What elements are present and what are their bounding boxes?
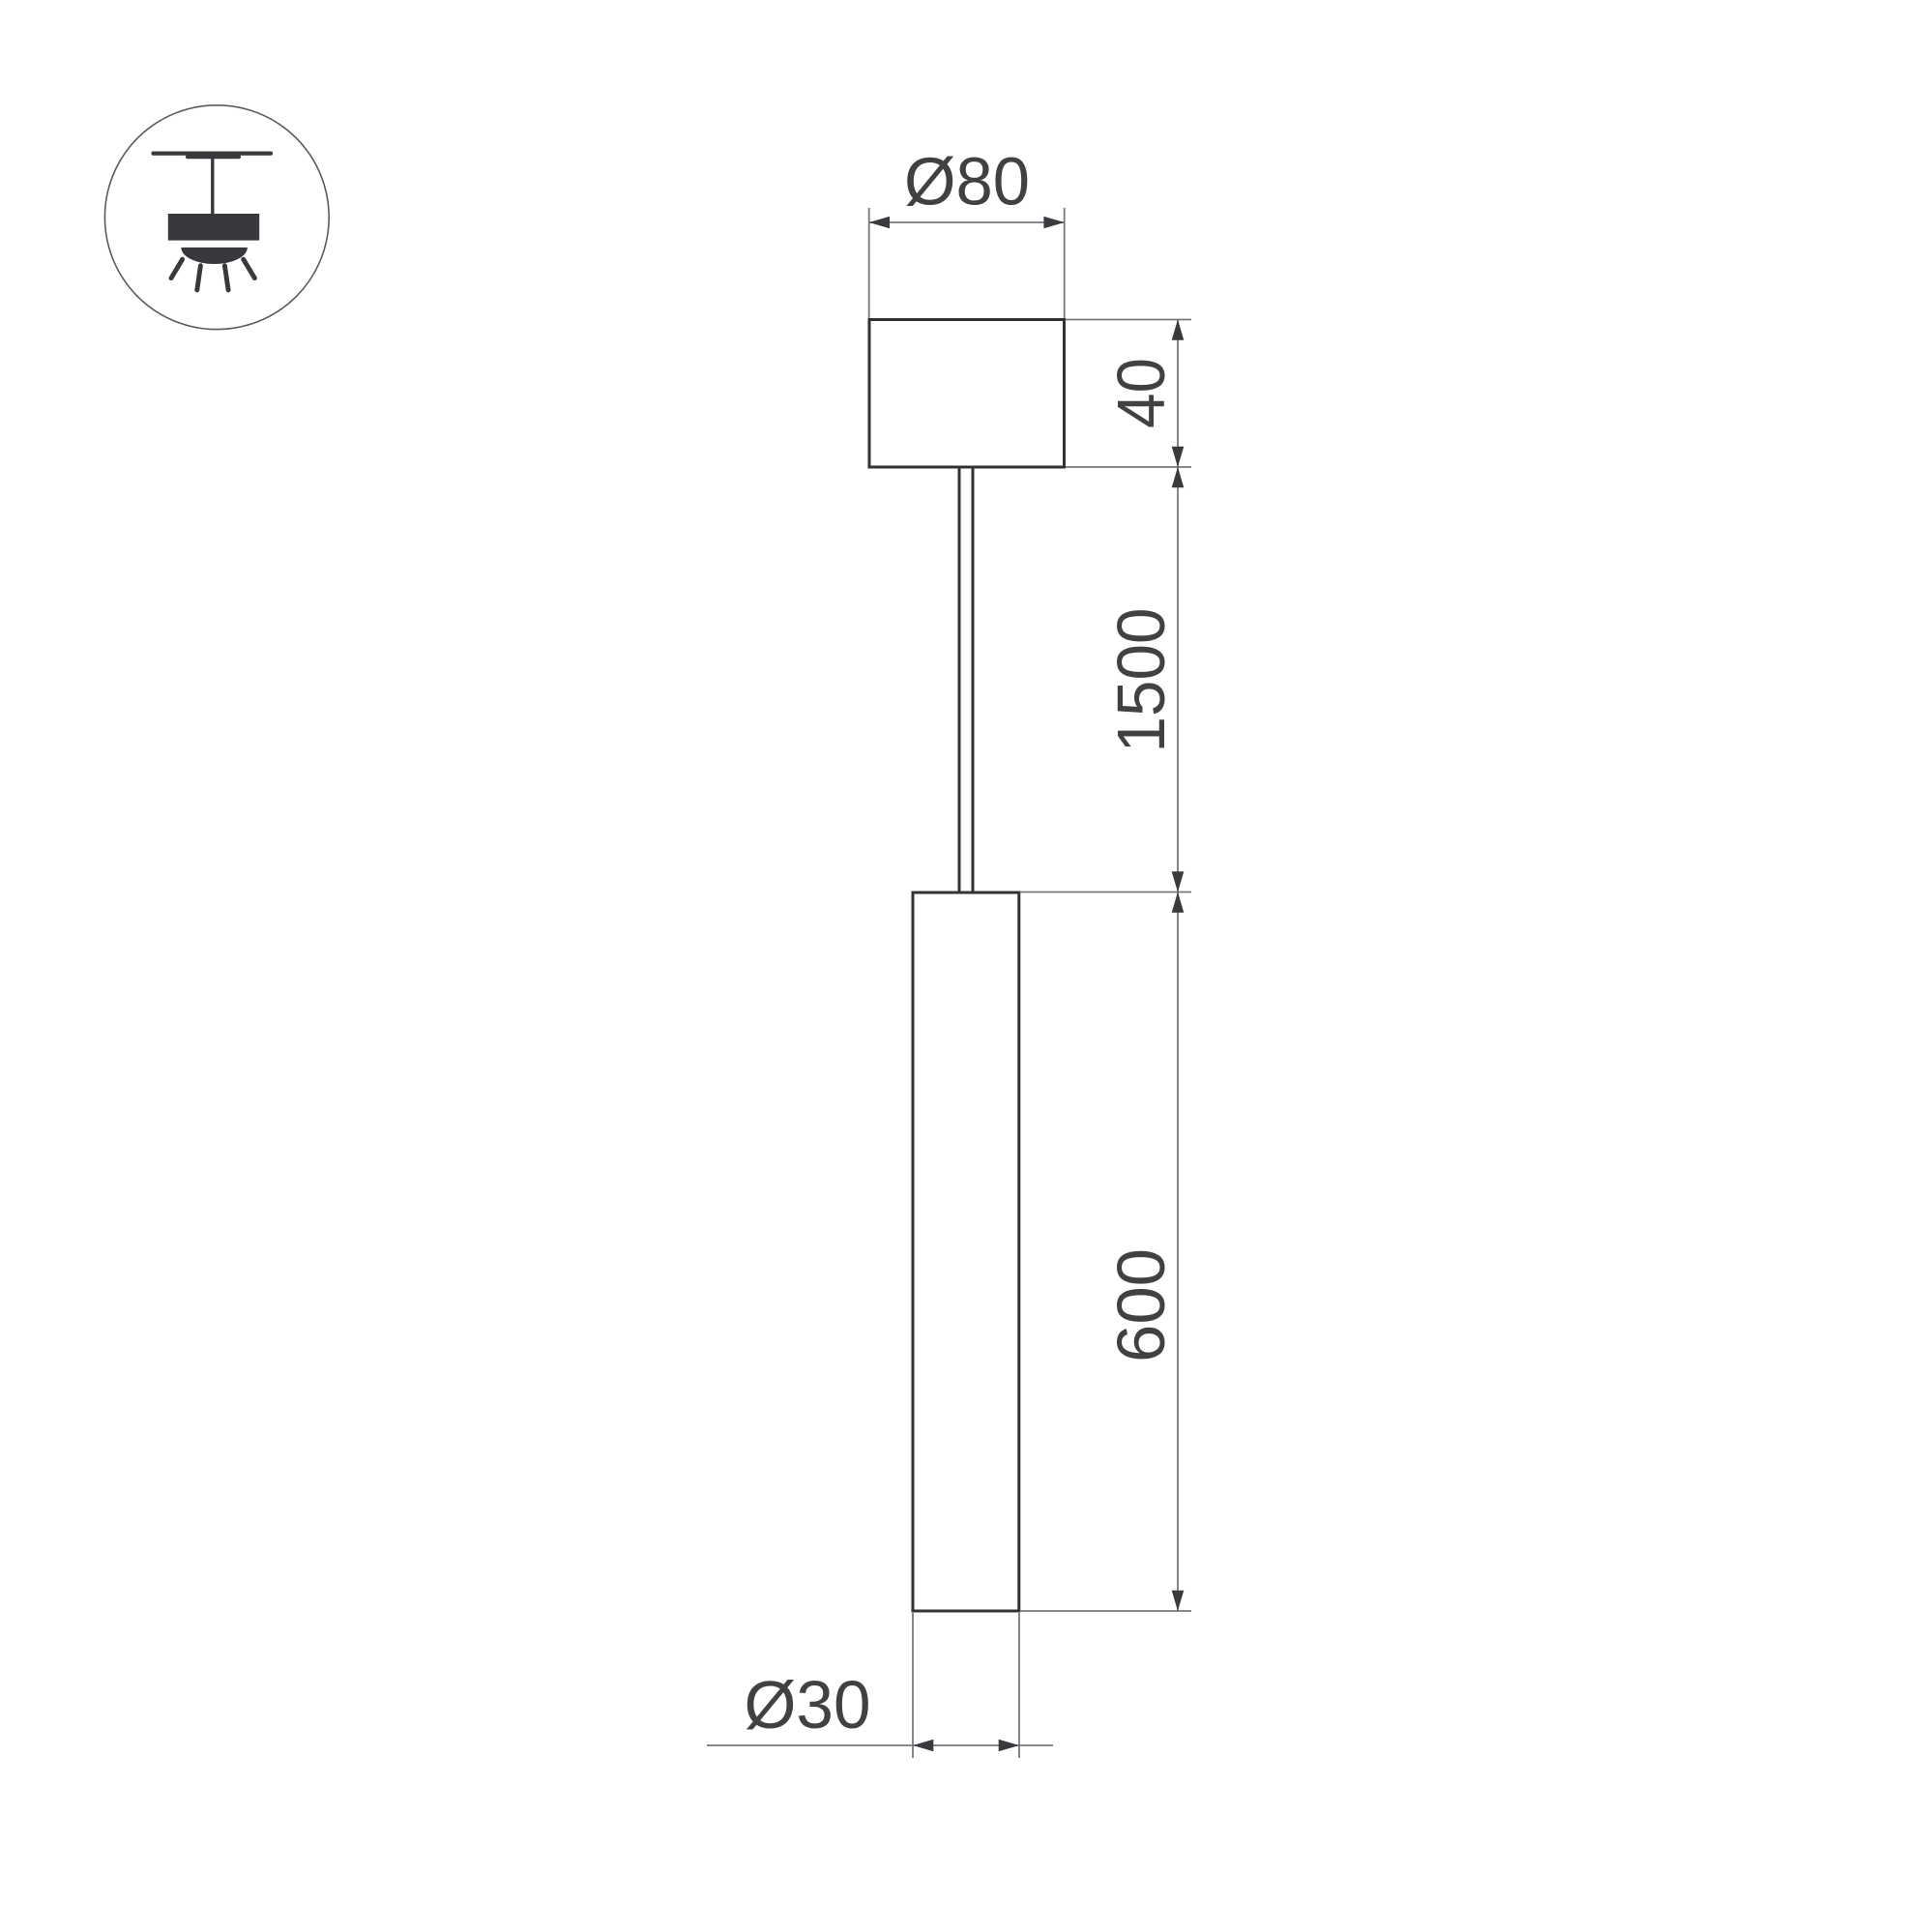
svg-text:Ø80: Ø80 — [904, 144, 1030, 220]
svg-text:Ø30: Ø30 — [745, 1667, 871, 1742]
svg-text:1500: 1500 — [1103, 608, 1179, 753]
svg-text:40: 40 — [1103, 358, 1179, 428]
svg-text:600: 600 — [1103, 1248, 1179, 1362]
